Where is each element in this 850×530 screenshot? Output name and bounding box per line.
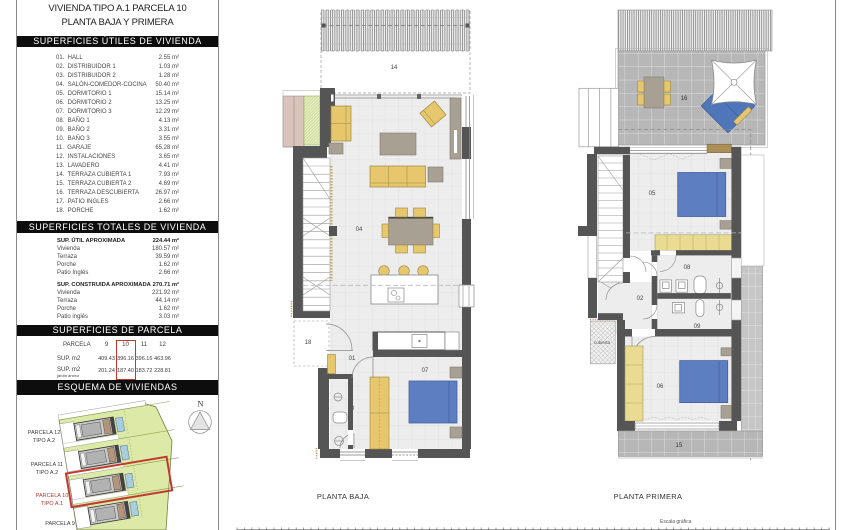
- svg-text:18: 18: [305, 340, 312, 346]
- svg-text:cubierta: cubierta: [594, 340, 611, 345]
- svg-text:04: 04: [356, 227, 363, 233]
- svg-text:01: 01: [349, 356, 356, 362]
- svg-text:02: 02: [637, 296, 644, 302]
- svg-text:15: 15: [676, 443, 683, 449]
- svg-text:16: 16: [681, 96, 688, 102]
- svg-text:N: N: [197, 399, 203, 409]
- svg-text:14: 14: [391, 65, 398, 71]
- svg-text:07: 07: [422, 368, 429, 374]
- svg-text:08: 08: [684, 265, 691, 271]
- svg-text:06: 06: [657, 384, 664, 390]
- svg-text:05: 05: [649, 191, 656, 197]
